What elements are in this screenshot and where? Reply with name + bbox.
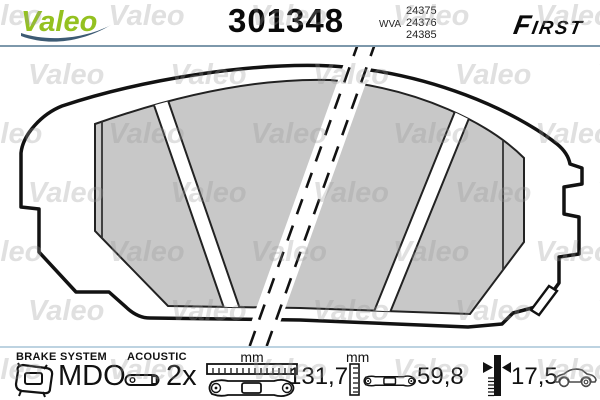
vertical-ruler-icon (349, 363, 360, 396)
caliper-icon (10, 360, 56, 400)
thickness-gauge-icon (482, 354, 512, 397)
brake-pad-product-sheet: Valeo 301348 WVA 24375 24376 24385 FIRST (0, 0, 600, 400)
height-value: 59,8 (417, 363, 464, 391)
width-value: 131,7 (288, 363, 348, 391)
brake-pad-drawing (0, 46, 600, 346)
thickness-value: 17,5 (511, 363, 558, 391)
wva-number: 24385 (406, 29, 437, 41)
valeo-logo: Valeo (18, 5, 118, 45)
horizontal-ruler-icon (206, 363, 298, 375)
pad-width-icon (206, 375, 298, 400)
valeo-logo-text: Valeo (21, 6, 97, 38)
wva-numbers: 24375 24376 24385 (406, 5, 437, 41)
footer-specs: BRAKE SYSTEM MDO ACOUSTIC 2x mm 131,7 (0, 346, 600, 400)
acoustic-shim-icon (124, 373, 162, 388)
acoustic-value: 2x (166, 360, 197, 393)
part-number: 301348 (228, 2, 344, 40)
wva-block: WVA 24375 24376 24385 (379, 5, 437, 41)
wva-label: WVA (379, 19, 401, 30)
brake-system-value: MDO (58, 360, 126, 393)
pad-height-icon (362, 368, 418, 394)
wva-number: 24376 (406, 17, 437, 29)
wva-number: 24375 (406, 5, 437, 17)
header: Valeo 301348 WVA 24375 24376 24385 FIRST (0, 0, 600, 47)
first-range-logo: FIRST (511, 10, 586, 41)
car-icon (552, 362, 598, 389)
